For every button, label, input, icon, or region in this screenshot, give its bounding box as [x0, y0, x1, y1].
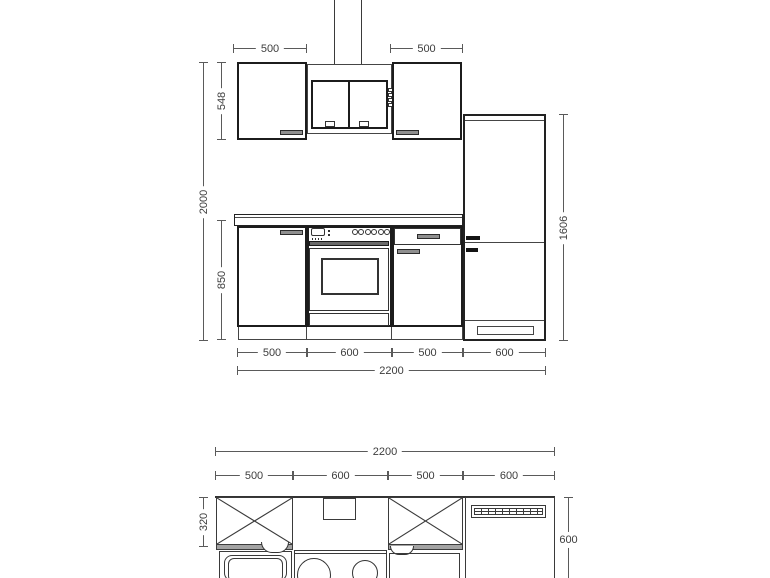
base-cabinet-left-handle — [280, 230, 303, 235]
wall-cabinet-left-handle — [280, 130, 303, 135]
dim-segment-2: 600 — [307, 346, 392, 359]
diagonal-cross — [389, 498, 462, 544]
dim-wall-left-width: 500 — [233, 42, 307, 55]
dim-label: 548 — [215, 88, 227, 114]
base-cabinet-left — [237, 226, 307, 327]
fridge-handle-lower — [466, 248, 478, 252]
dim-total-width: 2200 — [237, 364, 546, 377]
hood-door-handle-right — [359, 121, 369, 127]
dim-label: 500 — [240, 469, 268, 481]
dim-total-height: 2000 — [197, 62, 210, 341]
kitchen-technical-drawing: 500 500 2000 548 850 1606 500 600 500 60… — [0, 0, 770, 578]
plinth-divider — [306, 327, 307, 340]
dim-plan-segment-3: 500 — [388, 469, 463, 482]
dim-wall-right-width: 500 — [390, 42, 463, 55]
dim-label: 500 — [413, 346, 441, 358]
oven-knob — [371, 229, 377, 235]
dim-label: 2000 — [197, 185, 209, 217]
sink-basin-inner — [228, 558, 283, 578]
cooktop-edge-line — [294, 553, 387, 554]
hood-cabinet-door-divider — [348, 82, 350, 127]
oven-bottom-drawer — [309, 313, 389, 326]
plan-wall-cabinet-right — [388, 497, 463, 545]
dim-plan-segment-4: 600 — [463, 469, 555, 482]
fridge-grille-inner — [474, 508, 543, 515]
worktop-edge-line — [235, 217, 462, 218]
plan-hood — [323, 498, 356, 520]
dim-label: 500 — [412, 42, 440, 54]
dim-label: 850 — [215, 267, 227, 293]
dim-plan-worktop-depth: 600 — [562, 497, 575, 578]
plan-wall-cabinet-left — [216, 497, 293, 545]
oven-knob — [384, 229, 390, 235]
dim-plan-wall-depth: 320 — [197, 497, 210, 547]
fridge-top-edge-line — [465, 120, 544, 121]
dim-label: 600 — [326, 469, 354, 481]
dim-tall-unit-height: 1606 — [557, 114, 570, 341]
oven-door-handle — [309, 241, 389, 246]
dim-label: 1606 — [557, 211, 569, 243]
dim-label: 320 — [197, 509, 209, 535]
wall-cabinet-left — [237, 62, 307, 140]
dim-label: 2200 — [368, 445, 402, 457]
dim-plan-total-width: 2200 — [215, 445, 555, 458]
plinth-divider — [391, 327, 392, 340]
dim-plan-segment-2: 600 — [293, 469, 388, 482]
dim-segment-1: 500 — [237, 346, 307, 359]
fridge-handle-upper — [466, 236, 480, 240]
hood-door-handle-left — [325, 121, 335, 127]
oven-window — [321, 258, 379, 295]
dim-label: 600 — [495, 469, 523, 481]
diagonal-cross — [217, 498, 292, 544]
dim-label: 500 — [411, 469, 439, 481]
plinth — [238, 327, 463, 340]
oven-knob — [358, 229, 364, 235]
plan-base-cabinet-right — [389, 553, 460, 578]
fridge-door-split-line — [465, 242, 544, 243]
dim-plan-segment-1: 500 — [215, 469, 293, 482]
dim-label: 600 — [335, 346, 363, 358]
fridge-freezer — [463, 114, 546, 341]
dim-label: 500 — [256, 42, 284, 54]
wall-cabinet-right-handle — [396, 130, 419, 135]
base-drawer-handle — [417, 234, 440, 239]
dim-label: 2200 — [374, 364, 408, 376]
worktop — [234, 214, 463, 226]
dim-segment-3: 500 — [392, 346, 463, 359]
dim-label: 600 — [490, 346, 518, 358]
dim-wall-cabinet-height: 548 — [215, 62, 228, 140]
fridge-plinth-line — [465, 320, 544, 321]
base-door-handle — [397, 249, 420, 254]
dim-base-cabinet-height: 850 — [215, 220, 228, 340]
chimney-duct — [334, 0, 362, 64]
oven-display-buttons — [312, 238, 323, 240]
oven-panel-dots — [328, 230, 330, 232]
dim-label: 500 — [258, 346, 286, 358]
dim-segment-4: 600 — [463, 346, 546, 359]
dim-label: 600 — [558, 531, 578, 547]
wall-cabinet-right — [392, 62, 462, 140]
oven-clock-display — [311, 228, 325, 236]
fridge-vent-grille — [477, 326, 534, 335]
